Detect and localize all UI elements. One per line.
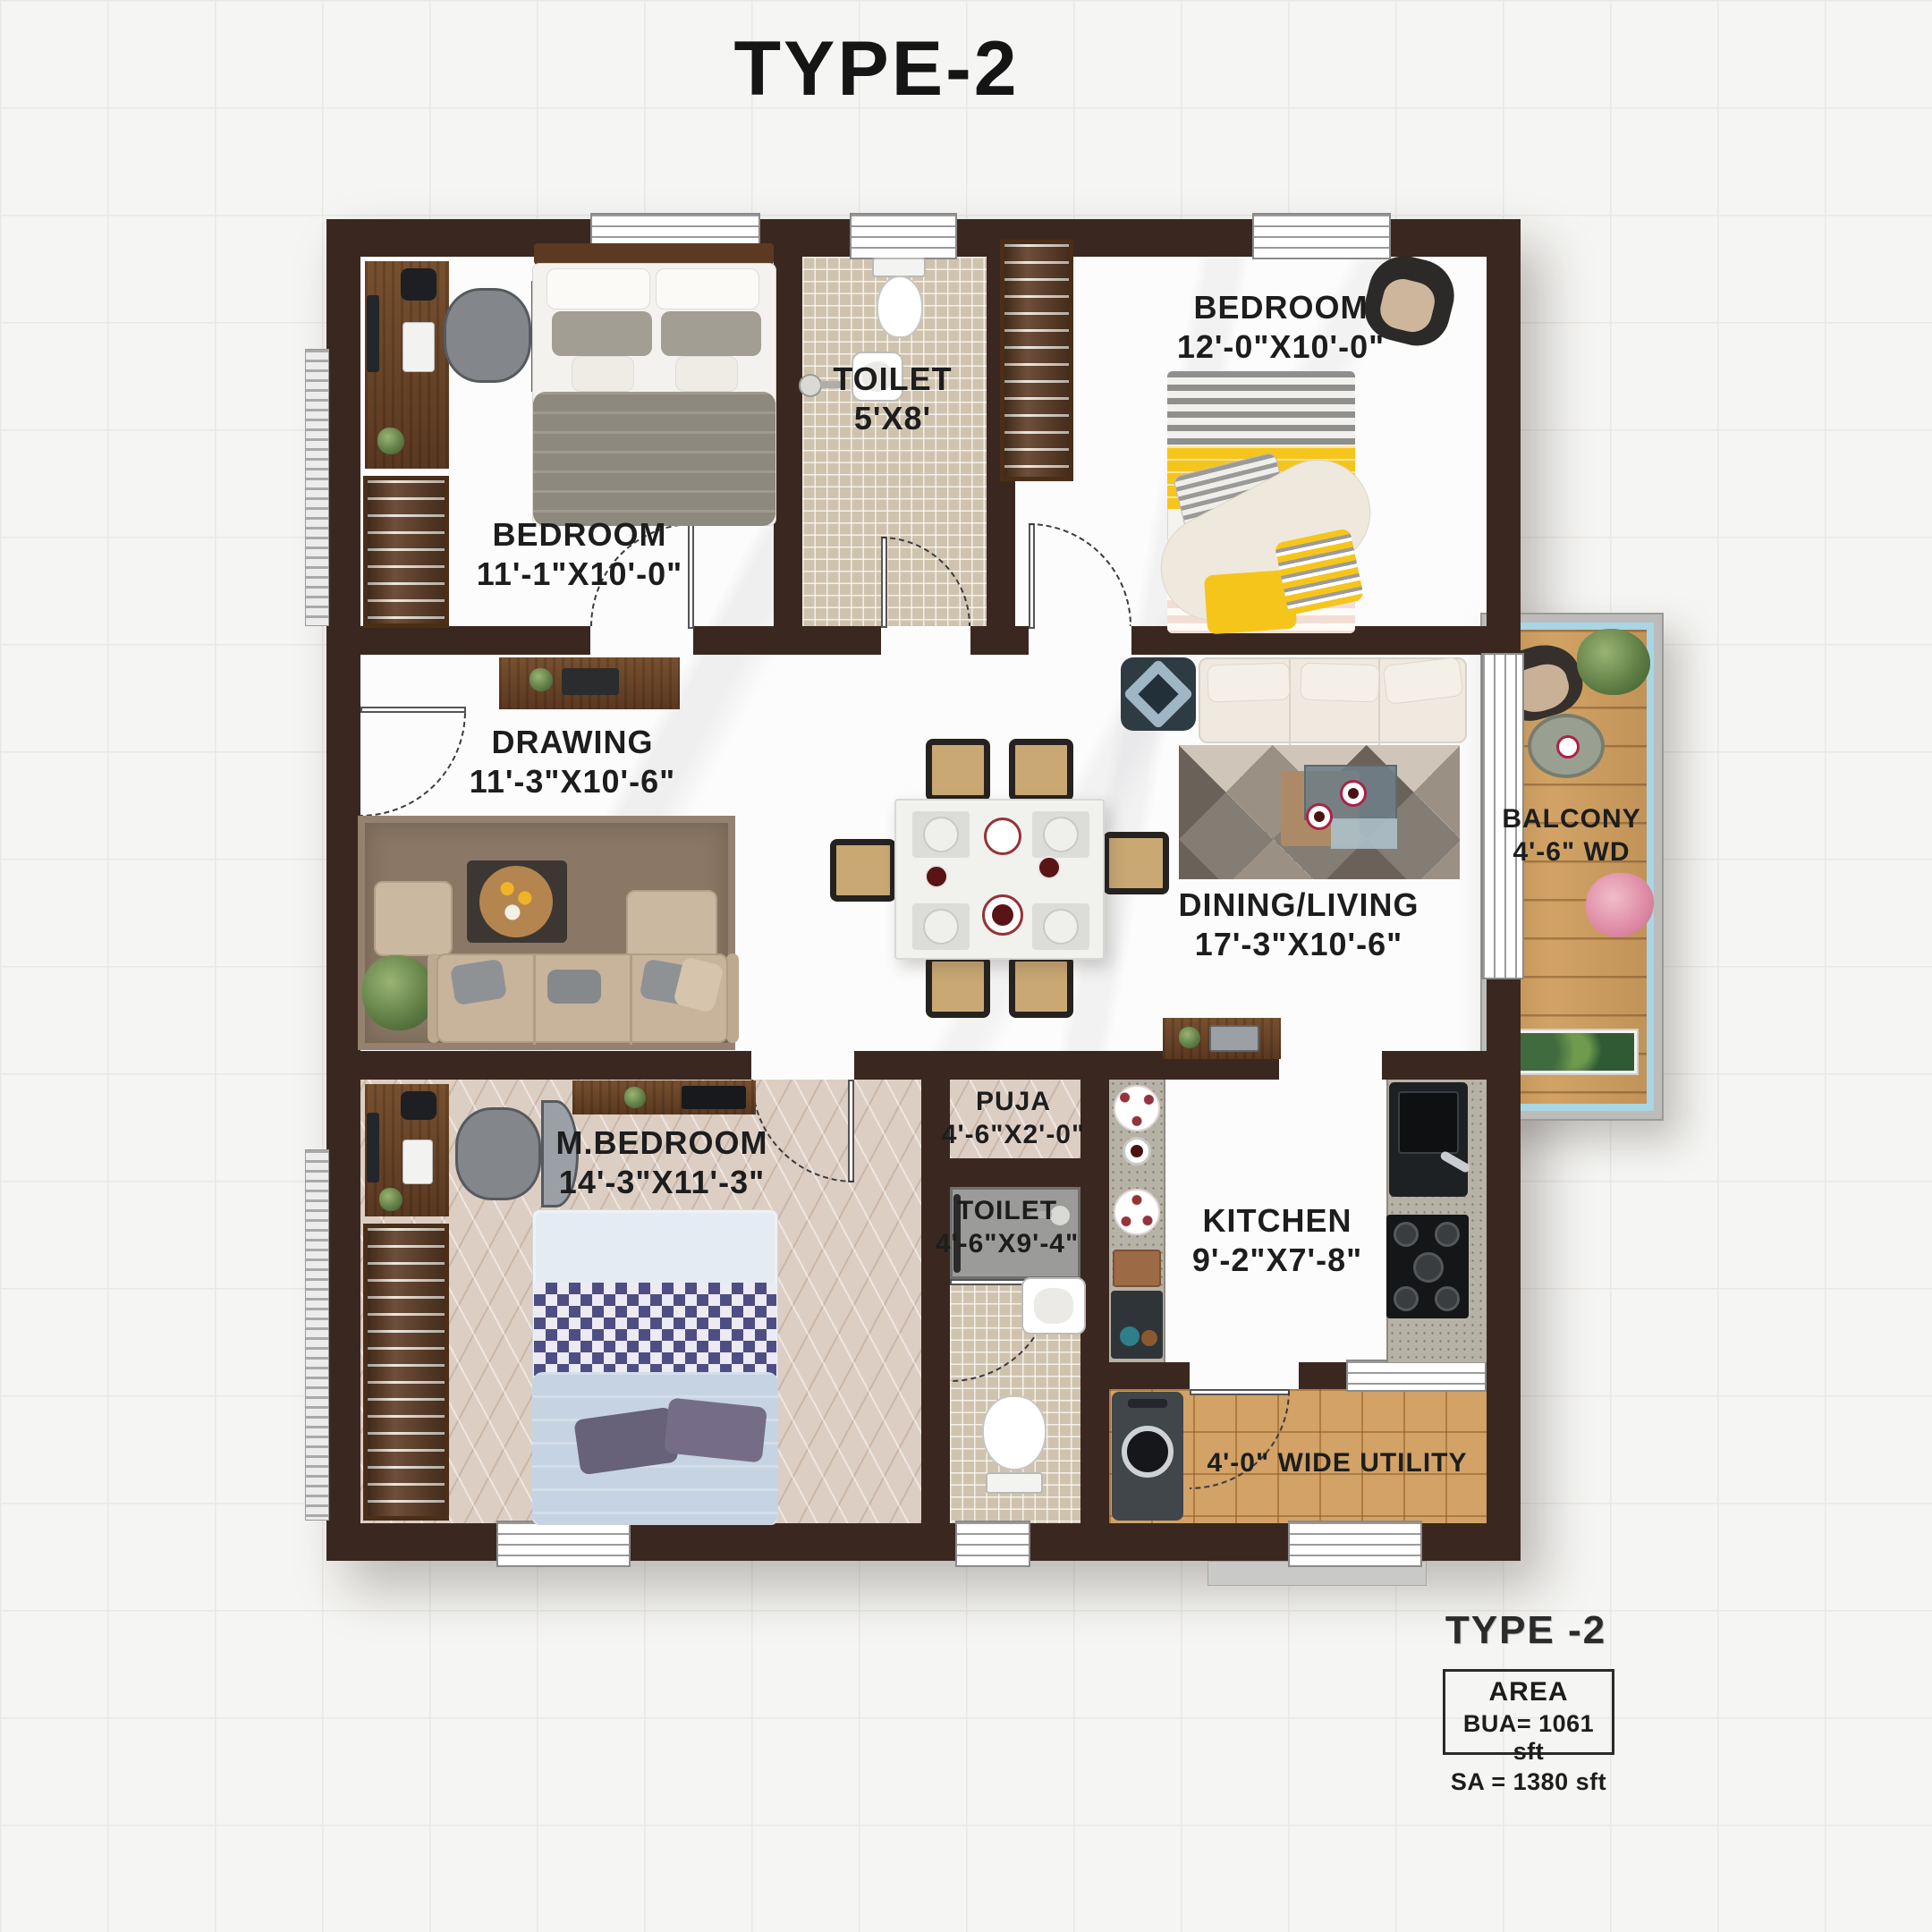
cup — [1123, 1137, 1151, 1165]
mousepad-bedroom1 — [401, 268, 436, 301]
room-label-utility: 4'-0" WIDE UTILITY — [1207, 1447, 1467, 1480]
kitchen-counter-left — [1109, 1080, 1165, 1362]
plate — [923, 909, 959, 945]
room-label-balcony: BALCONY 4'-6" WD — [1502, 803, 1640, 869]
back-cushion — [1383, 657, 1464, 705]
window-bedroom2 — [1252, 213, 1391, 259]
dining-chair — [1103, 832, 1169, 894]
plate-decor — [1114, 1085, 1160, 1131]
burner — [1394, 1286, 1419, 1311]
console-plant — [530, 668, 553, 691]
cup — [1306, 803, 1333, 830]
room-dims: 11'-1"X10'-0" — [477, 555, 682, 594]
pillow-purple — [664, 1397, 767, 1462]
cup — [925, 865, 948, 888]
monitor-bedroom1 — [367, 295, 379, 372]
desk-plant-bedroom1 — [377, 428, 404, 454]
console-tray — [562, 668, 619, 695]
room-dims: 9'-2"X7'-8" — [1192, 1241, 1362, 1280]
window-grille-left-mbedroom — [305, 1149, 329, 1521]
wall-kitchen-utility-b — [1299, 1362, 1346, 1389]
cup-contents — [1348, 788, 1359, 799]
plate — [1043, 817, 1079, 852]
pillow-small — [572, 356, 634, 392]
dining-chair — [830, 839, 896, 902]
room-label-kitchen: KITCHEN 9'-2"X7'-8" — [1192, 1201, 1362, 1280]
wall-midrow-a — [360, 1051, 751, 1080]
sofa-armrest — [726, 953, 739, 1043]
sink-basin — [1398, 1091, 1459, 1154]
pillow-small — [675, 356, 738, 392]
keyboard-bedroom1 — [402, 322, 435, 372]
room-label-bedroom-top-left: BEDROOM 11'-1"X10'-0" — [477, 515, 682, 594]
wall-toprow-c — [774, 626, 881, 655]
pillow — [547, 268, 650, 309]
room-label-puja: PUJA 4'-6"X2'-0" — [942, 1086, 1085, 1151]
keyboard-mbedroom — [402, 1140, 433, 1184]
room-label-drawing: DRAWING 11'-3"X10'-6" — [470, 723, 675, 801]
wall-kitchen-utility-a — [1109, 1362, 1190, 1389]
room-name: BEDROOM — [1177, 288, 1385, 327]
room-name: M.BEDROOM — [556, 1123, 768, 1163]
wall-toprow-b — [693, 626, 774, 655]
wall-puja-toilet — [950, 1158, 1080, 1187]
blanket-checkered — [534, 1283, 776, 1377]
wall-bedroom-toilet — [774, 257, 802, 655]
balcony-plant-green — [1577, 629, 1650, 695]
pillow-gray — [552, 311, 652, 356]
room-name: BALCONY — [1502, 803, 1640, 836]
room-dims: 4'-6"X9'-4" — [936, 1228, 1079, 1261]
plate — [1043, 909, 1079, 945]
room-dims: 12'-0"X10'-0" — [1177, 327, 1385, 367]
wall-midrow-c — [1382, 1051, 1487, 1080]
legend-type-label: TYPE -2 — [1445, 1608, 1606, 1653]
desk-bedroom1 — [365, 261, 449, 469]
blanket-gray-stripes — [1167, 371, 1355, 450]
headboard — [534, 243, 774, 265]
console-hall — [499, 657, 680, 709]
room-dims: 4'-6"X2'-0" — [942, 1119, 1085, 1152]
room-dims: 14'-3"X11'-3" — [556, 1163, 768, 1202]
toilet-tank-bottom — [986, 1472, 1043, 1494]
coffee-table-top — [479, 866, 553, 937]
seat-divider — [533, 955, 536, 1045]
seat-divider — [630, 955, 632, 1045]
page-title: TYPE-2 — [733, 25, 1019, 114]
tv-shelf-mbedroom — [572, 1080, 756, 1114]
chair-seat — [455, 1107, 541, 1200]
washing-machine — [1112, 1392, 1183, 1521]
window-master-bedroom — [496, 1521, 631, 1567]
placemat — [1032, 811, 1089, 858]
jar — [1141, 1330, 1157, 1346]
dining-chair — [1009, 955, 1073, 1018]
burner — [1435, 1222, 1460, 1247]
window-utility — [1288, 1521, 1422, 1567]
bed-bedroom1 — [532, 243, 776, 526]
room-dims: 11'-3"X10'-6" — [470, 762, 675, 801]
shelf-plant — [624, 1087, 646, 1108]
ottoman-drawing — [374, 881, 453, 956]
legend-area-box: AREA BUA= 1061 sft SA = 1380 sft — [1443, 1669, 1614, 1755]
gas-hob — [1386, 1215, 1469, 1318]
planter-greens — [1513, 1033, 1634, 1071]
desk-plant-mbedroom — [379, 1188, 402, 1211]
wall-exterior-left — [326, 219, 360, 1561]
tv — [682, 1086, 746, 1109]
room-dims: 5'X8' — [833, 399, 952, 438]
room-name: DINING/LIVING — [1178, 885, 1419, 925]
room-name: KITCHEN — [1192, 1201, 1362, 1241]
shower-head — [799, 374, 822, 397]
sofa-drawing — [436, 953, 728, 1043]
pillow — [656, 268, 759, 309]
placemat — [1032, 903, 1089, 950]
mousepad-mbedroom — [401, 1091, 436, 1120]
pillow-striped-yellow — [1274, 528, 1364, 615]
legend-area-heading: AREA — [1445, 1677, 1612, 1707]
balcony-table — [1528, 714, 1605, 778]
room-name: TOILET — [936, 1195, 1079, 1228]
room-dims: 4'-6" WD — [1502, 836, 1640, 869]
washbasin-bottom — [1021, 1277, 1086, 1335]
coffee-table-drawing — [467, 860, 567, 943]
burner — [1394, 1222, 1419, 1247]
pillow-gray — [547, 970, 601, 1004]
bed-mbedroom — [532, 1209, 778, 1525]
dining-chair — [926, 739, 990, 801]
dining-chair — [1009, 739, 1073, 801]
desk-mbedroom — [365, 1084, 449, 1216]
serving-bowl — [984, 818, 1021, 855]
console-plant — [1179, 1027, 1200, 1048]
pillow-gray — [450, 959, 507, 1006]
plate — [923, 817, 959, 852]
dining-chair — [926, 955, 990, 1018]
window-toilet-top — [850, 213, 957, 259]
toilet-tank-top — [872, 258, 926, 277]
washer-door — [1122, 1426, 1174, 1478]
room-name: TOILET — [833, 360, 952, 399]
wardrobe-bedroom2 — [1000, 240, 1073, 481]
legend-bua: BUA= 1061 sft — [1445, 1710, 1612, 1766]
room-label-master-bedroom: M.BEDROOM 14'-3"X11'-3" — [556, 1123, 768, 1202]
back-cushion — [1300, 662, 1379, 702]
chopping-board — [1113, 1250, 1161, 1287]
floor-plan-page: { "title": "TYPE-2", "rooms": { "bedroom… — [0, 0, 1932, 1932]
cup-contents — [1314, 811, 1325, 822]
sofa-living — [1199, 657, 1467, 743]
balcony-table-cup — [1556, 735, 1580, 758]
laptop — [1209, 1025, 1259, 1052]
bowl-contents — [992, 904, 1013, 926]
pillow-gray — [661, 311, 761, 356]
room-label-dining-living: DINING/LIVING 17'-3"X10'-6" — [1178, 885, 1419, 964]
wall-toprow-d — [970, 626, 1029, 655]
window-kitchen-utility — [1346, 1360, 1487, 1392]
washer-panel — [1128, 1399, 1167, 1408]
room-name: PUJA — [942, 1086, 1085, 1119]
kitchen-sink — [1389, 1082, 1468, 1197]
room-label-toilet-top: TOILET 5'X8' — [833, 360, 952, 438]
bed-bedroom2 — [1167, 371, 1355, 633]
dining-table — [894, 799, 1105, 960]
room-name: BEDROOM — [477, 515, 682, 555]
back-cushion — [1207, 662, 1290, 702]
room-dims: 17'-3"X10'-6" — [1178, 925, 1419, 964]
sofa-chaise-drawing — [626, 890, 717, 962]
serving-bowl — [982, 894, 1023, 936]
duvet-gray — [533, 392, 775, 526]
cup — [1038, 856, 1061, 879]
coffee-table-living-shelf — [1331, 818, 1397, 849]
room-label-toilet-bottom: TOILET 4'-6"X9'-4" — [936, 1195, 1079, 1260]
media-unit — [1121, 657, 1196, 731]
burner-center — [1413, 1252, 1444, 1283]
chair-seat — [444, 288, 531, 383]
console-living — [1163, 1018, 1281, 1059]
room-label-bedroom-top-right: BEDROOM 12'-0"X10'-0" — [1177, 288, 1385, 367]
basin — [1034, 1288, 1073, 1324]
burner — [1435, 1286, 1460, 1311]
kettle — [1120, 1326, 1140, 1346]
chair-cushion — [1377, 275, 1439, 335]
placemat — [912, 903, 970, 950]
coffee-station — [1111, 1291, 1163, 1359]
wall-toprow-a — [360, 626, 590, 655]
sheet-top — [536, 1213, 775, 1288]
monitor-mbedroom — [367, 1113, 379, 1182]
balcony-planter-box — [1508, 1029, 1639, 1075]
toilet-bowl-bottom — [982, 1395, 1046, 1470]
room-name: DRAWING — [470, 723, 675, 762]
cup — [1340, 780, 1367, 807]
plate-decor — [1114, 1189, 1160, 1235]
wardrobe-mbedroom — [363, 1224, 449, 1521]
wardrobe-bedroom1 — [363, 476, 449, 628]
room-name: 4'-0" WIDE UTILITY — [1207, 1447, 1467, 1480]
window-toilet-bottom — [955, 1521, 1030, 1567]
cup-contents — [1131, 1145, 1143, 1157]
toilet-bowl-top — [877, 275, 923, 338]
plant-drawing — [362, 955, 436, 1030]
legend-sa: SA = 1380 sft — [1445, 1768, 1612, 1796]
placemat — [912, 811, 970, 858]
window-grille-left-bedroom1 — [305, 349, 329, 626]
